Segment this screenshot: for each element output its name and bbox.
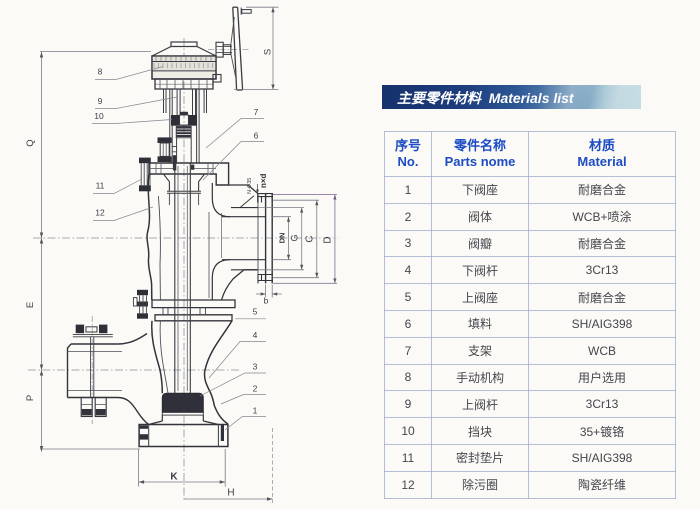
svg-text:8: 8 (98, 67, 103, 77)
svg-text:9: 9 (98, 96, 103, 106)
svg-text:3: 3 (253, 362, 258, 372)
svg-text:G: G (290, 234, 300, 241)
svg-text:12: 12 (95, 208, 105, 218)
svg-text:2: 2 (253, 384, 258, 394)
svg-text:4: 4 (253, 330, 258, 340)
svg-text:b: b (264, 296, 269, 306)
svg-text:E: E (25, 302, 36, 308)
svg-text:10: 10 (94, 111, 104, 121)
svg-text:7: 7 (254, 107, 259, 117)
svg-text:P: P (25, 395, 36, 401)
svg-text:D: D (323, 236, 334, 243)
svg-text:1: 1 (253, 406, 258, 416)
svg-text:S: S (263, 49, 274, 55)
svg-text:5: 5 (253, 307, 258, 317)
svg-text:K: K (170, 472, 178, 483)
svg-text:DN: DN (278, 233, 287, 244)
svg-text:N-Φ35: N-Φ35 (247, 178, 253, 194)
svg-text:C: C (305, 235, 316, 242)
svg-text:n×d: n×d (259, 173, 268, 188)
svg-text:Q: Q (25, 139, 36, 146)
svg-text:6: 6 (254, 131, 259, 141)
svg-text:H: H (227, 488, 234, 499)
svg-text:11: 11 (96, 181, 105, 191)
